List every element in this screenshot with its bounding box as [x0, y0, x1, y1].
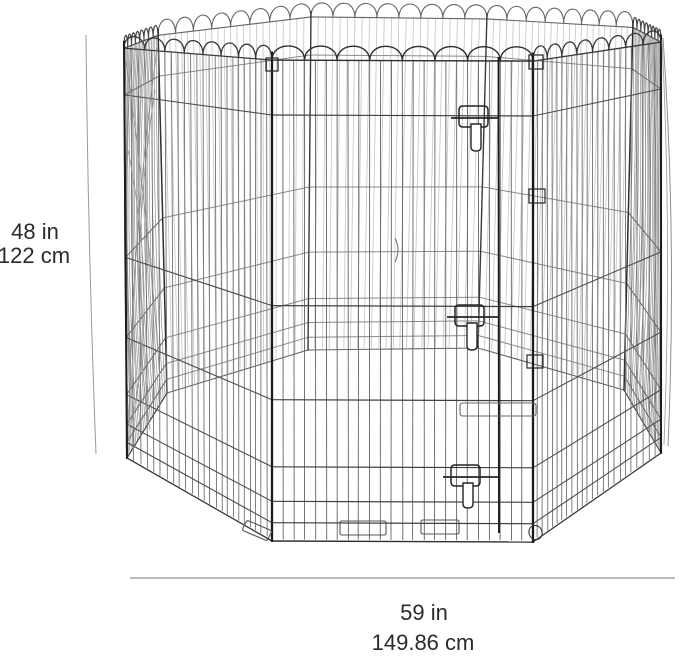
svg-text:48 in: 48 in — [11, 219, 59, 244]
svg-text:59 in: 59 in — [400, 600, 448, 625]
svg-text:149.86 cm: 149.86 cm — [372, 630, 475, 655]
svg-text:122 cm: 122 cm — [0, 243, 70, 268]
